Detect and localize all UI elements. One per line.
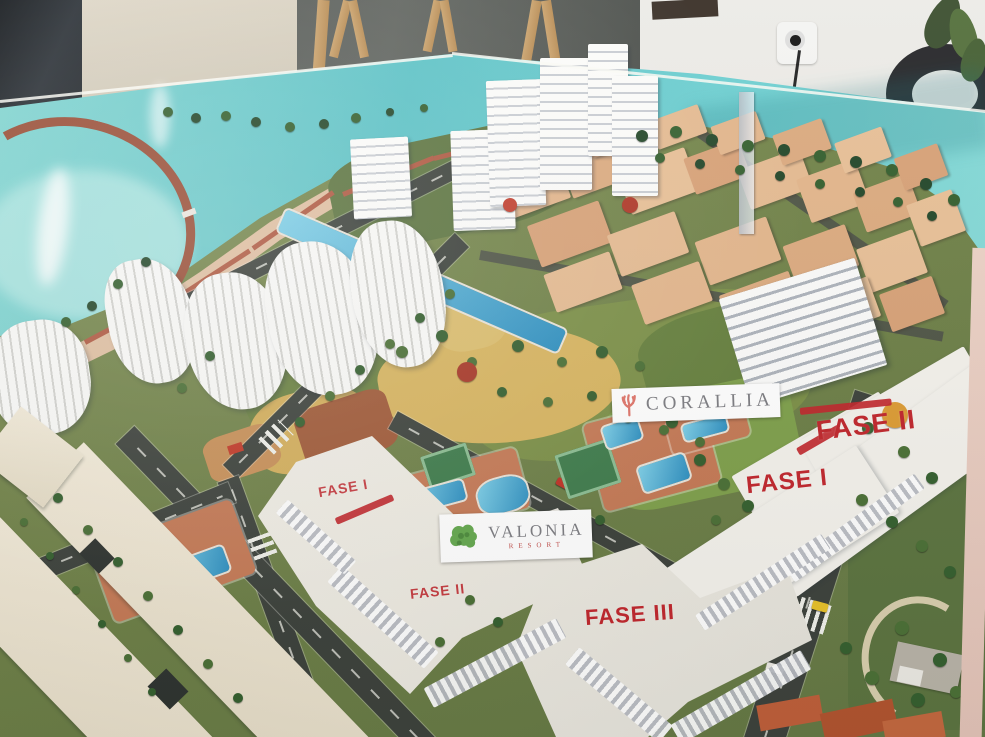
tree xyxy=(659,425,669,435)
plug-black xyxy=(790,35,801,46)
tree xyxy=(635,361,645,371)
tree xyxy=(177,383,187,393)
tree xyxy=(636,130,648,142)
tree xyxy=(778,144,790,156)
tree-icon xyxy=(447,520,482,555)
corallia-sign: CORALLIA xyxy=(611,383,780,423)
tree xyxy=(445,289,455,299)
tree xyxy=(285,122,295,132)
flowering-tree xyxy=(622,197,638,213)
tree xyxy=(191,113,201,123)
chimney-tower xyxy=(739,92,754,234)
tree xyxy=(815,179,825,189)
tree xyxy=(351,113,361,123)
tree xyxy=(948,194,960,206)
flowering-tree xyxy=(503,198,517,212)
tree xyxy=(141,257,151,267)
tree xyxy=(435,637,445,647)
tree xyxy=(895,621,909,635)
tree xyxy=(596,346,608,358)
tree xyxy=(886,516,898,528)
tree xyxy=(233,693,243,703)
tree xyxy=(124,654,132,662)
tree xyxy=(695,159,705,169)
white-tower xyxy=(540,58,592,190)
valonia-subtitle: RESORT xyxy=(509,541,566,550)
tree xyxy=(465,595,475,605)
tree xyxy=(20,518,28,526)
tree xyxy=(850,156,862,168)
tree xyxy=(415,313,425,323)
tree xyxy=(221,111,231,121)
door-frame xyxy=(652,0,719,20)
tree xyxy=(203,659,213,669)
tree xyxy=(944,566,956,578)
tree xyxy=(927,211,937,221)
tree xyxy=(386,108,394,116)
white-tower xyxy=(486,79,546,207)
tree xyxy=(143,591,153,601)
tree xyxy=(587,391,597,401)
tree xyxy=(113,557,123,567)
tree xyxy=(173,625,183,635)
white-tower xyxy=(612,76,658,196)
tree xyxy=(385,339,395,349)
tree xyxy=(113,279,123,289)
tree xyxy=(557,357,567,367)
tree xyxy=(706,134,718,146)
tree xyxy=(295,417,305,427)
tree xyxy=(814,150,826,162)
tree xyxy=(775,171,785,181)
tree xyxy=(886,164,898,176)
tree xyxy=(920,178,932,190)
tree xyxy=(595,515,605,525)
tree xyxy=(83,525,93,535)
tree xyxy=(840,642,852,654)
coral-icon xyxy=(618,393,641,418)
tree xyxy=(916,540,928,552)
tree xyxy=(512,340,524,352)
tree xyxy=(933,653,947,667)
tree xyxy=(98,620,106,628)
tree xyxy=(694,454,706,466)
tree xyxy=(163,107,173,117)
tree xyxy=(711,515,721,525)
tree xyxy=(655,153,665,163)
tree xyxy=(718,478,730,490)
tree xyxy=(670,126,682,138)
tree xyxy=(735,165,745,175)
tree xyxy=(355,365,365,375)
tree xyxy=(893,197,903,207)
tree xyxy=(543,397,553,407)
tree xyxy=(148,688,156,696)
tree xyxy=(493,617,503,627)
tree xyxy=(856,494,868,506)
tree xyxy=(53,493,63,503)
tree xyxy=(497,387,507,397)
tree xyxy=(87,301,97,311)
valonia-sign: VALONIA RESORT xyxy=(439,509,593,562)
tree xyxy=(319,119,329,129)
tree xyxy=(72,586,80,594)
tree xyxy=(742,140,754,152)
resort-model-photo: CORALLIA VALONIA RESORT FASE II FASE I F… xyxy=(0,0,985,737)
tree xyxy=(855,187,865,197)
tree xyxy=(251,117,261,127)
tree xyxy=(205,351,215,361)
tree xyxy=(911,693,925,707)
tree xyxy=(61,317,71,327)
tree xyxy=(742,500,754,512)
tree xyxy=(865,671,879,685)
tree xyxy=(420,104,428,112)
tree xyxy=(898,446,910,458)
flowering-tree xyxy=(457,362,477,382)
tree xyxy=(436,330,448,342)
tree xyxy=(396,346,408,358)
tree xyxy=(695,437,705,447)
valonia-title: VALONIA xyxy=(488,520,585,540)
white-tower xyxy=(350,137,412,220)
tree xyxy=(325,391,335,401)
corallia-text: CORALLIA xyxy=(646,389,775,415)
tree xyxy=(926,472,938,484)
tree xyxy=(46,552,54,560)
